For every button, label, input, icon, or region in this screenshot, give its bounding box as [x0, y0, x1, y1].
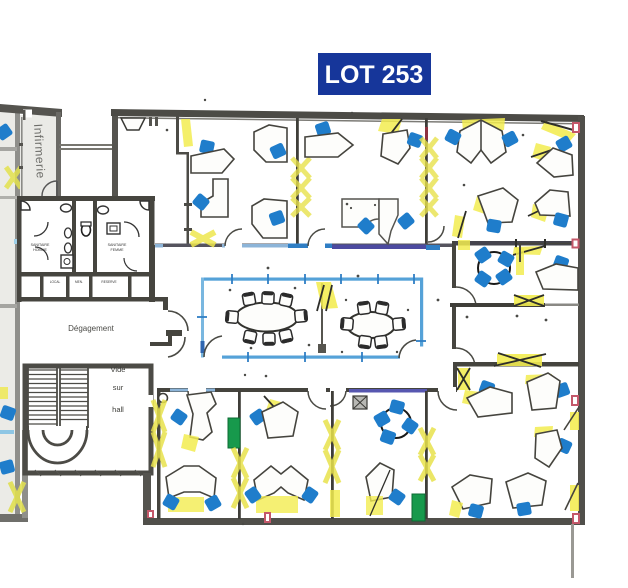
svg-text:SANITAIRE: SANITAIRE — [108, 243, 127, 247]
svg-text:hall: hall — [112, 405, 124, 414]
svg-text:LOCAL: LOCAL — [50, 280, 61, 284]
svg-text:Vide: Vide — [111, 365, 126, 374]
svg-text:sur: sur — [113, 383, 124, 392]
svg-text:FEMME: FEMME — [111, 248, 125, 252]
svg-text:Infirmerie: Infirmerie — [31, 123, 48, 179]
svg-text:SANITAIRE: SANITAIRE — [31, 243, 50, 247]
svg-text:MEN.: MEN. — [75, 280, 83, 284]
svg-text:RESERVE: RESERVE — [101, 280, 116, 284]
svg-text:HOMME: HOMME — [33, 248, 47, 252]
svg-text:LOT 253: LOT 253 — [325, 61, 424, 89]
svg-text:Dégagement: Dégagement — [68, 324, 115, 333]
